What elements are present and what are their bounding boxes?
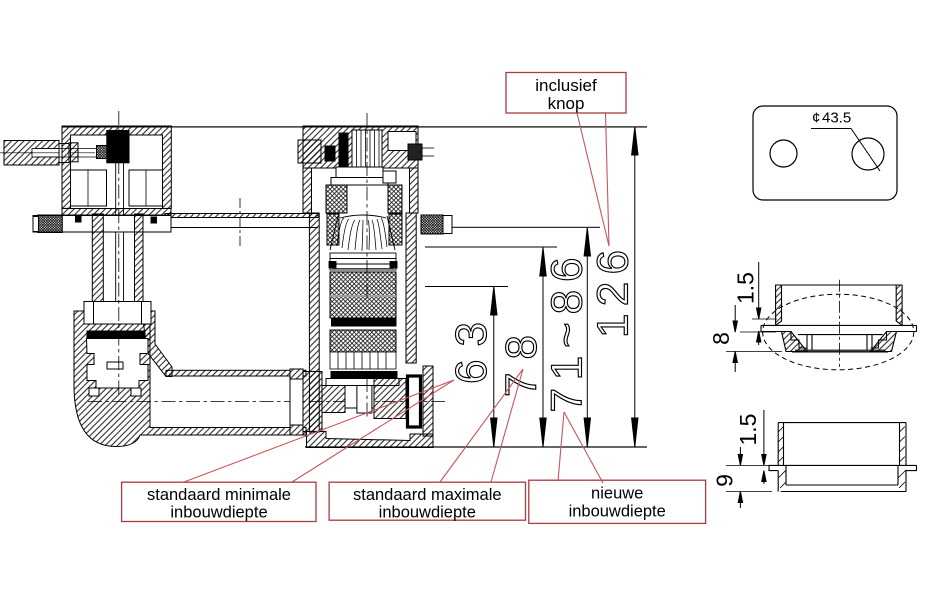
svg-text:43.5: 43.5 xyxy=(822,110,851,127)
svg-text:inbouwdiepte: inbouwdiepte xyxy=(170,504,267,522)
svg-text:126: 126 xyxy=(589,250,638,338)
svg-text:1.5: 1.5 xyxy=(735,414,761,446)
svg-text:knop: knop xyxy=(548,94,585,113)
svg-text:inbouwdiepte: inbouwdiepte xyxy=(569,503,666,521)
svg-text:inclusief: inclusief xyxy=(535,76,597,95)
svg-text:8: 8 xyxy=(708,332,734,345)
svg-text:9: 9 xyxy=(712,474,738,487)
svg-text:1.5: 1.5 xyxy=(733,272,759,304)
svg-text:¢: ¢ xyxy=(812,110,820,127)
svg-text:standaard minimale: standaard minimale xyxy=(147,486,291,504)
svg-text:71~86: 71~86 xyxy=(543,258,592,413)
svg-text:standaard maximale: standaard maximale xyxy=(353,486,502,504)
svg-text:inbouwdiepte: inbouwdiepte xyxy=(379,504,476,522)
svg-text:nieuwe: nieuwe xyxy=(591,485,643,503)
